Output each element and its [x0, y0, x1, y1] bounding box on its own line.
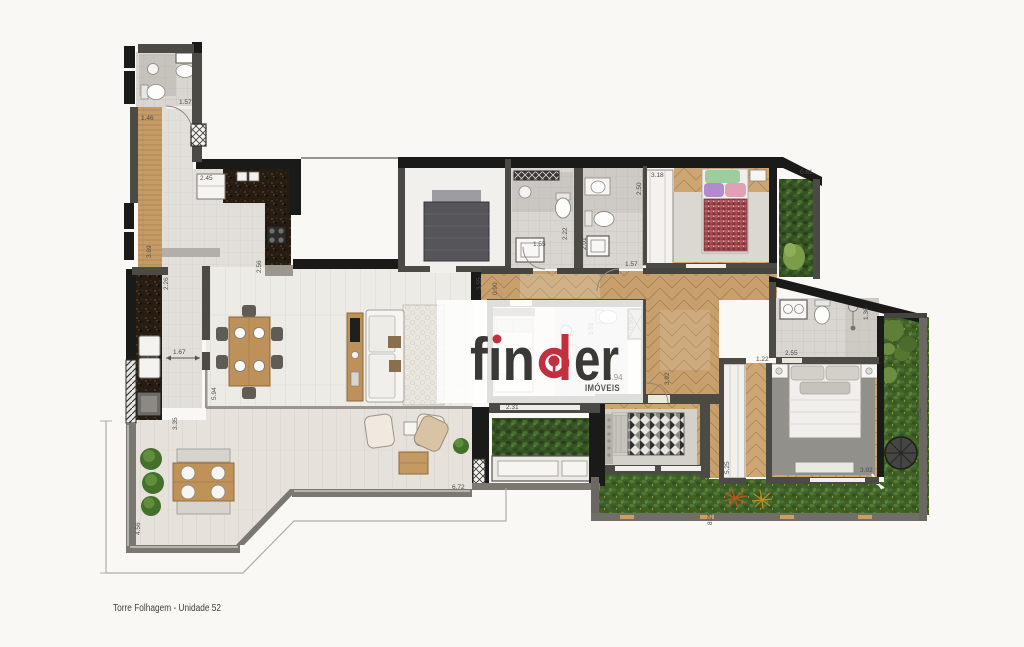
svg-text:2.22: 2.22 [562, 227, 569, 240]
svg-text:2.45: 2.45 [200, 175, 213, 182]
svg-text:fın: fın [470, 326, 535, 393]
svg-text:0.90: 0.90 [492, 282, 499, 295]
svg-text:1.57: 1.57 [625, 261, 638, 268]
svg-text:6.72: 6.72 [452, 484, 465, 491]
svg-text:5.94: 5.94 [211, 387, 218, 400]
svg-text:3.18: 3.18 [651, 172, 664, 179]
svg-text:3.69: 3.69 [146, 245, 153, 258]
svg-text:Torre Folhagem - Unidade 52: Torre Folhagem - Unidade 52 [113, 603, 221, 614]
svg-text:1.46: 1.46 [141, 115, 154, 122]
svg-text:IMÓVEIS: IMÓVEIS [585, 382, 620, 393]
svg-text:1.22: 1.22 [756, 356, 769, 363]
svg-text:1.57: 1.57 [179, 99, 192, 106]
svg-text:2.01: 2.01 [581, 237, 588, 250]
svg-text:1.36: 1.36 [863, 307, 870, 320]
svg-text:3.92: 3.92 [860, 467, 873, 474]
svg-text:4.56: 4.56 [135, 522, 142, 535]
svg-text:3.35: 3.35 [172, 417, 179, 430]
svg-text:8.25: 8.25 [707, 512, 714, 525]
svg-text:6.85: 6.85 [603, 503, 616, 510]
svg-text:2.50: 2.50 [636, 182, 643, 195]
svg-text:2.31: 2.31 [506, 404, 519, 411]
svg-text:1.67: 1.67 [173, 349, 186, 356]
svg-text:2.26: 2.26 [163, 277, 170, 290]
svg-text:0.61: 0.61 [800, 169, 813, 176]
svg-text:3.55: 3.55 [476, 277, 483, 290]
svg-text:5.25: 5.25 [724, 461, 731, 474]
svg-text:2.01: 2.01 [810, 202, 817, 215]
svg-text:1.55: 1.55 [533, 241, 546, 248]
svg-text:2.55: 2.55 [785, 350, 798, 357]
svg-text:2.56: 2.56 [256, 260, 263, 273]
svg-text:3.92: 3.92 [664, 372, 671, 385]
svg-text:8.62: 8.62 [916, 407, 923, 420]
